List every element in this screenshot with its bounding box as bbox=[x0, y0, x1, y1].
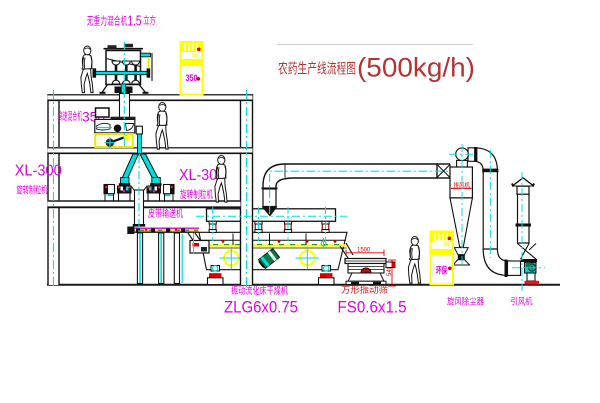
svg-text:1.5: 1.5 bbox=[128, 13, 142, 30]
svg-text:旋风除尘器: 旋风除尘器 bbox=[447, 296, 484, 307]
svg-text:1500: 1500 bbox=[357, 248, 371, 254]
svg-text:XL-300: XL-300 bbox=[15, 163, 62, 180]
svg-text:皮带输送机: 皮带输送机 bbox=[148, 207, 183, 220]
svg-text:ZLG6x0.75: ZLG6x0.75 bbox=[224, 298, 298, 317]
svg-text:农药生产线流程图: 农药生产线流程图 bbox=[278, 61, 356, 77]
svg-text:(500kg/h): (500kg/h) bbox=[357, 53, 475, 83]
svg-text:350: 350 bbox=[186, 73, 198, 83]
svg-text:旋转制粒机: 旋转制粒机 bbox=[180, 188, 213, 201]
svg-text:高速混合机: 高速混合机 bbox=[58, 110, 82, 123]
svg-text:振动流化床干燥机: 振动流化床干燥机 bbox=[231, 285, 288, 297]
svg-text:FS0.6x1.5: FS0.6x1.5 bbox=[338, 298, 407, 317]
svg-text:环保: 环保 bbox=[436, 265, 448, 276]
svg-text:引风机: 引风机 bbox=[511, 296, 533, 307]
svg-text:方形振动筛: 方形振动筛 bbox=[341, 284, 388, 296]
svg-text:立方: 立方 bbox=[143, 14, 156, 27]
svg-text:旋转制粒机: 旋转制粒机 bbox=[17, 184, 48, 197]
svg-text:无重力混合机: 无重力混合机 bbox=[87, 14, 128, 28]
